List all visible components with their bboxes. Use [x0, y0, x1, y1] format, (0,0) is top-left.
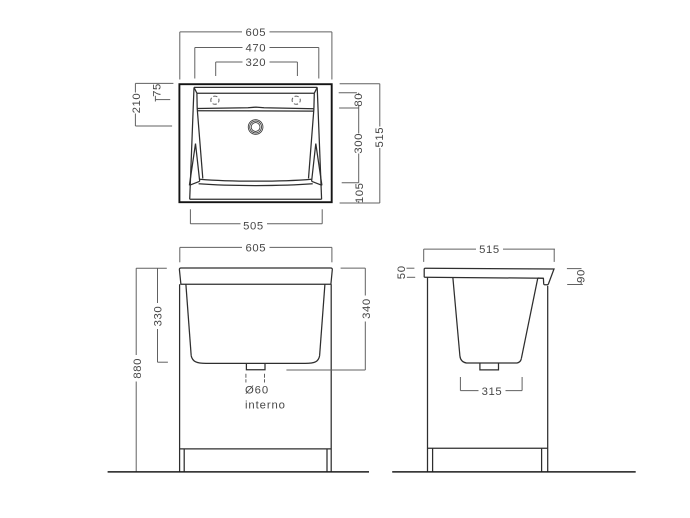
svg-text:605: 605: [245, 27, 266, 39]
svg-text:315: 315: [482, 386, 503, 398]
svg-text:515: 515: [374, 127, 386, 148]
svg-text:210: 210: [131, 93, 143, 114]
svg-text:80: 80: [353, 93, 365, 107]
svg-text:75: 75: [152, 83, 164, 97]
svg-text:320: 320: [245, 57, 266, 69]
svg-text:interno: interno: [245, 399, 286, 411]
svg-text:50: 50: [396, 265, 408, 279]
svg-text:Ø60: Ø60: [245, 384, 269, 396]
svg-text:880: 880: [132, 358, 144, 379]
svg-text:90: 90: [576, 269, 588, 283]
svg-text:515: 515: [479, 244, 500, 256]
svg-text:330: 330: [152, 306, 164, 327]
svg-text:470: 470: [245, 43, 266, 55]
svg-text:505: 505: [243, 220, 264, 232]
svg-text:340: 340: [361, 298, 373, 319]
svg-text:105: 105: [354, 182, 366, 203]
svg-text:605: 605: [245, 242, 266, 254]
svg-text:300: 300: [353, 133, 365, 154]
